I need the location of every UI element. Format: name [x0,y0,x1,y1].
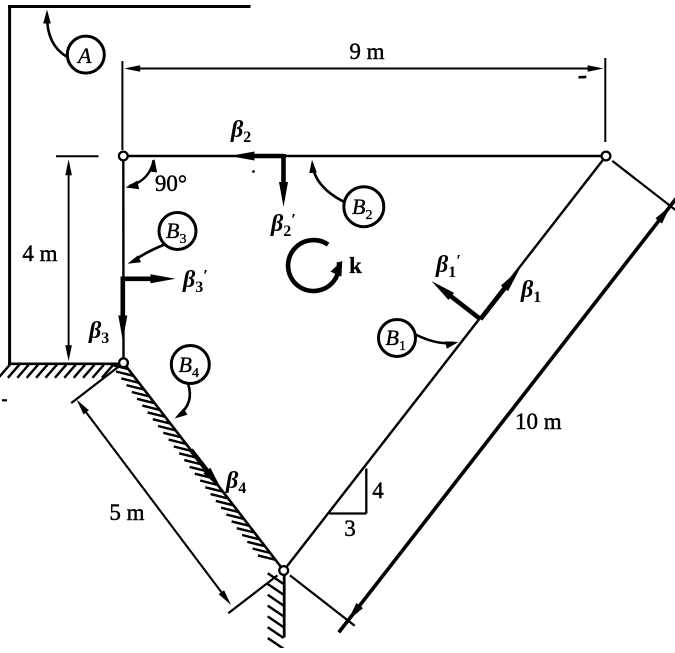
svg-text:90°: 90° [155,171,187,196]
svg-text:10 m: 10 m [515,409,562,434]
svg-text:β2′: β2′ [270,210,296,240]
svg-text:β2: β2 [230,117,251,146]
svg-text:9 m: 9 m [349,39,384,64]
svg-text:β4: β4 [225,468,246,497]
svg-text:β1′: β1′ [435,251,461,281]
svg-text:β3′: β3′ [182,266,208,296]
svg-text:3: 3 [344,516,356,541]
svg-text:β1: β1 [520,277,541,306]
svg-text:A: A [76,43,92,68]
svg-text:5 m: 5 m [109,500,144,525]
svg-text:β3: β3 [88,318,109,347]
svg-text:k: k [349,253,362,278]
svg-text:4: 4 [372,478,384,503]
svg-text:4 m: 4 m [22,241,57,266]
